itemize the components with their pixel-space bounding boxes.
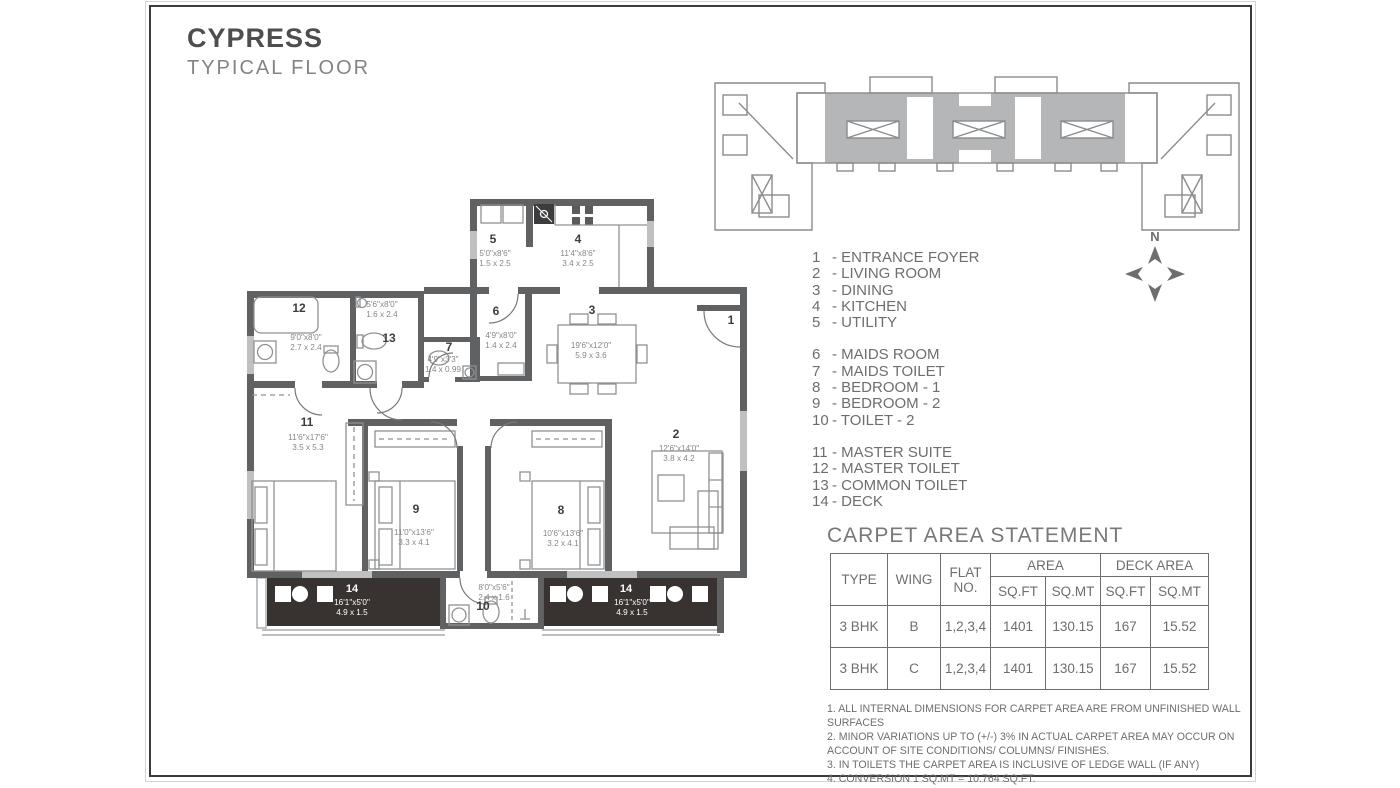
- cell-area-sqft: 1401: [991, 648, 1046, 690]
- svg-text:7: 7: [446, 340, 453, 354]
- svg-text:14: 14: [346, 583, 359, 595]
- table-row: 3 BHK C 1,2,3,4 1401 130.15 167 15.52: [831, 648, 1209, 690]
- legend-item-5: 5- UTILITY: [812, 315, 980, 331]
- page-title: CYPRESS: [187, 23, 370, 54]
- svg-text:3.2 x 4.1: 3.2 x 4.1: [547, 539, 579, 548]
- room-label-3: 319'6"x12'0"5.9 x 3.6: [571, 303, 611, 360]
- legend-item-10: 10- TOILET - 2: [812, 413, 980, 429]
- legend-item-9: 9- BEDROOM - 2: [812, 396, 980, 412]
- disclaimer-notes: 1. ALL INTERNAL DIMENSIONS FOR CARPET AR…: [827, 702, 1265, 786]
- legend-item-3: 3- DINING: [812, 283, 980, 299]
- svg-text:16'1"x5'0": 16'1"x5'0": [614, 598, 650, 607]
- room-label-1: 1: [728, 313, 735, 327]
- table-row: 3 BHK B 1,2,3,4 1401 130.15 167 15.52: [831, 606, 1209, 648]
- svg-text:2: 2: [673, 427, 680, 441]
- note-item: 1. ALL INTERNAL DIMENSIONS FOR CARPET AR…: [827, 702, 1265, 730]
- room-label-11: 1111'6"x17'6"3.5 x 5.3: [288, 415, 328, 452]
- brochure-page: CYPRESS TYPICAL FLOOR: [0, 0, 1400, 788]
- cell-type: 3 BHK: [831, 648, 888, 690]
- svg-text:11'4"x8'6": 11'4"x8'6": [560, 249, 595, 258]
- svg-text:3: 3: [589, 303, 596, 317]
- svg-text:5'0"x8'6": 5'0"x8'6": [479, 249, 510, 258]
- cell-area-sqmt: 130.15: [1046, 648, 1101, 690]
- legend-item-11: 11- MASTER SUITE: [812, 445, 980, 461]
- svg-text:1.5 x 2.5: 1.5 x 2.5: [479, 259, 511, 268]
- carpet-area-table: TYPE WING FLAT NO. AREA DECK AREA SQ.FT …: [830, 553, 1209, 690]
- svg-text:8: 8: [558, 503, 565, 517]
- svg-text:16'1"x5'0": 16'1"x5'0": [334, 598, 370, 607]
- room-label-13: 135'6"x8'0"1.6 x 2.4: [366, 300, 398, 345]
- svg-text:4: 4: [575, 232, 582, 246]
- legend-group: 6- MAIDS ROOM7- MAIDS TOILET8- BEDROOM -…: [812, 347, 980, 428]
- room-label-4: 411'4"x8'6"3.4 x 2.5: [560, 232, 595, 268]
- cell-area-sqft: 1401: [991, 606, 1046, 648]
- key-plan-drawing: [697, 45, 1257, 237]
- room-label-8: 810'6"x13'6"3.2 x 4.1: [543, 503, 583, 548]
- svg-text:9'0"x8'0": 9'0"x8'0": [290, 333, 321, 342]
- cell-wing: C: [888, 648, 941, 690]
- cell-deck-sqft: 167: [1101, 606, 1151, 648]
- svg-text:5.9 x 3.6: 5.9 x 3.6: [575, 351, 607, 360]
- svg-text:8'0"x5'6": 8'0"x5'6": [478, 583, 509, 592]
- legend-item-8: 8- BEDROOM - 1: [812, 380, 980, 396]
- col-header-deck-area: DECK AREA: [1101, 554, 1209, 577]
- svg-text:11'6"x17'6": 11'6"x17'6": [288, 433, 328, 442]
- note-item: 3. IN TOILETS THE CARPET AREA IS INCLUSI…: [827, 758, 1265, 772]
- north-label: N: [1123, 229, 1187, 244]
- title-block: CYPRESS TYPICAL FLOOR: [187, 23, 370, 80]
- svg-text:6: 6: [493, 304, 500, 318]
- svg-text:10'6"x13'6": 10'6"x13'6": [543, 529, 583, 538]
- svg-text:3.4 x 2.5: 3.4 x 2.5: [562, 259, 594, 268]
- svg-text:3.8 x 4.2: 3.8 x 4.2: [663, 454, 695, 463]
- cell-deck-sqmt: 15.52: [1151, 648, 1209, 690]
- svg-text:3.5 x 5.3: 3.5 x 5.3: [292, 443, 324, 452]
- cell-wing: B: [888, 606, 941, 648]
- legend-item-12: 12- MASTER TOILET: [812, 461, 980, 477]
- legend-item-14: 14- DECK: [812, 494, 980, 510]
- cell-type: 3 BHK: [831, 606, 888, 648]
- col-header-area: AREA: [991, 554, 1101, 577]
- windows: [247, 221, 747, 578]
- svg-text:5'6"x8'0": 5'6"x8'0": [366, 300, 397, 309]
- col-header-deck-sqft: SQ.FT: [1101, 577, 1151, 606]
- cell-deck-sqft: 167: [1101, 648, 1151, 690]
- svg-text:12: 12: [292, 301, 306, 315]
- cell-flat: 1,2,3,4: [941, 648, 991, 690]
- room-label-2: 212'6"x14'0"3.8 x 4.2: [659, 427, 699, 463]
- svg-text:1.6 x 2.4: 1.6 x 2.4: [366, 310, 398, 319]
- svg-text:2.4 x 1.6: 2.4 x 1.6: [478, 593, 510, 602]
- room-legend: 1- ENTRANCE FOYER2- LIVING ROOM3- DINING…: [812, 250, 980, 526]
- legend-item-2: 2- LIVING ROOM: [812, 266, 980, 282]
- legend-group: 1- ENTRANCE FOYER2- LIVING ROOM3- DINING…: [812, 250, 980, 331]
- room-label-10: 108'0"x5'6"2.4 x 1.6: [476, 583, 510, 613]
- col-header-deck-sqmt: SQ.MT: [1151, 577, 1209, 606]
- note-item: 2. MINOR VARIATIONS UP TO (+/-) 3% IN AC…: [827, 730, 1265, 758]
- legend-item-13: 13- COMMON TOILET: [812, 478, 980, 494]
- col-header-type: TYPE: [831, 554, 888, 606]
- svg-text:11: 11: [301, 415, 314, 429]
- svg-text:1: 1: [728, 313, 735, 327]
- col-header-area-sqmt: SQ.MT: [1046, 577, 1101, 606]
- svg-text:5: 5: [490, 232, 497, 246]
- svg-text:14: 14: [620, 583, 633, 595]
- legend-item-4: 4- KITCHEN: [812, 299, 980, 315]
- key-plan-outline: [715, 77, 1239, 230]
- svg-text:12'6"x14'0": 12'6"x14'0": [659, 444, 699, 453]
- cell-deck-sqmt: 15.52: [1151, 606, 1209, 648]
- page-frame: CYPRESS TYPICAL FLOOR: [149, 5, 1252, 777]
- page-subtitle: TYPICAL FLOOR: [187, 57, 370, 80]
- cell-flat: 1,2,3,4: [941, 606, 991, 648]
- legend-item-1: 1- ENTRANCE FOYER: [812, 250, 980, 266]
- compass-icon: [1123, 244, 1187, 304]
- col-header-wing: WING: [888, 554, 941, 606]
- col-header-flat-no: FLAT NO.: [941, 554, 991, 606]
- svg-text:1.4 x 2.4: 1.4 x 2.4: [485, 341, 517, 350]
- svg-text:11'0"x13'6": 11'0"x13'6": [394, 528, 434, 537]
- svg-text:19'6"x12'0": 19'6"x12'0": [571, 341, 611, 350]
- svg-text:13: 13: [382, 331, 396, 345]
- svg-text:3.3 x 4.1: 3.3 x 4.1: [398, 538, 430, 547]
- cell-area-sqmt: 130.15: [1046, 606, 1101, 648]
- north-arrow: N: [1123, 229, 1187, 305]
- note-item: 4. CONVERSION 1 SQ.MT = 10.764 SQ.FT.: [827, 772, 1265, 786]
- legend-item-7: 7- MAIDS TOILET: [812, 364, 980, 380]
- room-label-7: 74'9"x3'3"1.4 x 0.99: [425, 340, 461, 374]
- svg-text:2.7 x 2.4: 2.7 x 2.4: [290, 343, 322, 352]
- legend-group: 11- MASTER SUITE12- MASTER TOILET13- COM…: [812, 445, 980, 510]
- svg-text:4'9"x3'3": 4'9"x3'3": [427, 355, 458, 364]
- svg-text:4.9 x 1.5: 4.9 x 1.5: [616, 608, 648, 617]
- svg-text:4.9 x 1.5: 4.9 x 1.5: [336, 608, 368, 617]
- svg-text:1.4 x 0.99: 1.4 x 0.99: [425, 365, 461, 374]
- svg-text:4'9"x8'0": 4'9"x8'0": [485, 331, 516, 340]
- svg-text:9: 9: [413, 502, 420, 516]
- legend-item-6: 6- MAIDS ROOM: [812, 347, 980, 363]
- col-header-area-sqft: SQ.FT: [991, 577, 1046, 606]
- floor-plan-drawing: 1212'6"x14'0"3.8 x 4.2319'6"x12'0"5.9 x …: [242, 191, 762, 691]
- carpet-area-heading: CARPET AREA STATEMENT: [827, 524, 1123, 548]
- room-label-5: 55'0"x8'6"1.5 x 2.5: [479, 232, 511, 268]
